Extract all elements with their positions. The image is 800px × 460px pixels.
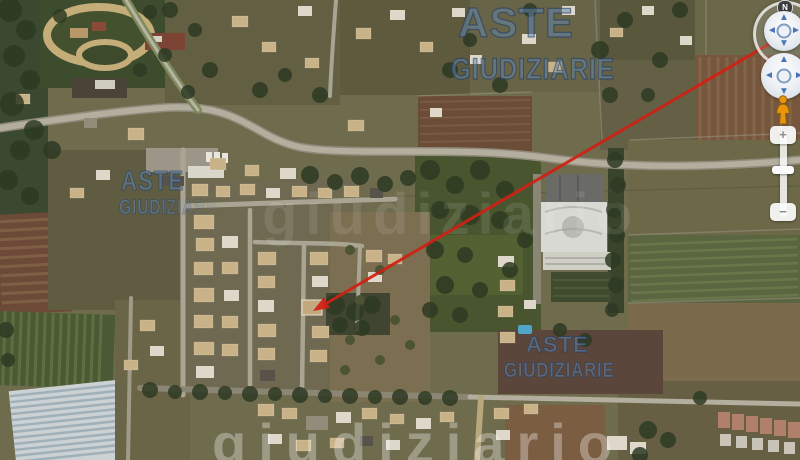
brand-watermark-bottom-line1: ASTE [526,334,589,356]
brand-watermark-left-line2: GIUDIZIARIE [119,197,223,218]
move-center-hand[interactable] [777,69,792,84]
brand-watermark-top-line1: ASTE [458,2,574,44]
move-up-arrow[interactable]: ▲ [779,55,789,65]
zoom-in-button[interactable]: + [770,126,796,144]
look-center-eye[interactable] [777,24,792,39]
map-viewport[interactable]: giudiziario giudiziario ASTE GIUDIZIARIE… [0,0,800,460]
faint-watermark-bottom: giudiziario [212,416,624,460]
pegman-icon[interactable] [771,95,795,125]
move-right-arrow[interactable]: ► [794,71,800,81]
move-left-arrow[interactable]: ◄ [764,71,774,81]
look-down-arrow[interactable]: ▼ [779,39,789,49]
brand-watermark-left-line1: ASTE [121,167,184,195]
zoom-slider-knob[interactable] [772,166,794,174]
look-left-arrow[interactable]: ◄ [767,26,777,36]
move-joystick[interactable]: ▲ ▼ ◄ ► [761,53,800,99]
look-joystick[interactable]: ▲ ▼ ◄ ► [764,11,800,51]
look-right-arrow[interactable]: ► [791,26,800,36]
look-up-arrow[interactable]: ▲ [779,13,789,23]
faint-watermark-middle: giudiziario [262,186,640,244]
zoom-out-button[interactable]: − [770,203,796,221]
brand-watermark-bottom-line2: GIUDIZIARIE [504,360,615,381]
brand-watermark-top-line2: GIUDIZIARIE [451,55,615,85]
